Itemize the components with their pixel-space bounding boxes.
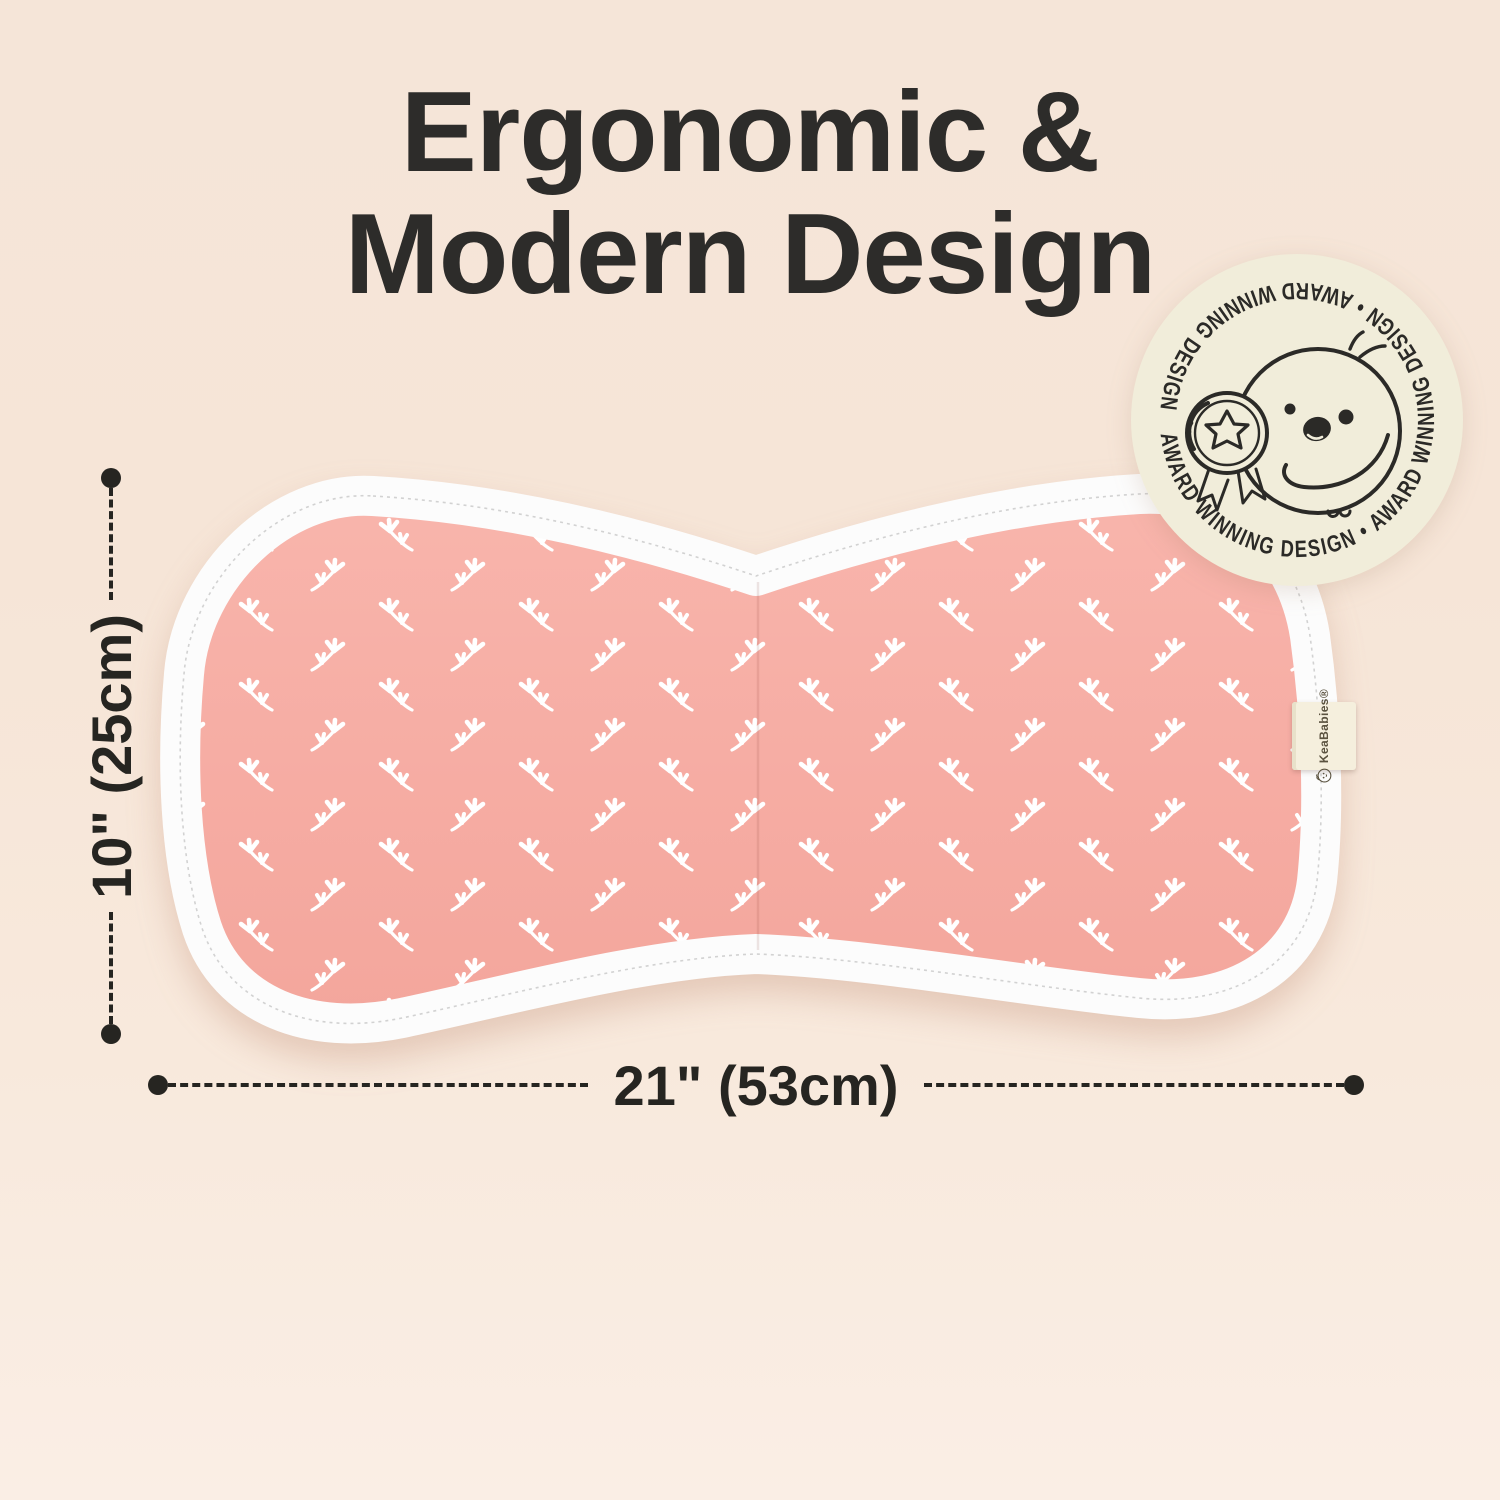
title-line-1: Ergonomic & — [401, 69, 1099, 196]
dimension-dashed-line — [109, 488, 113, 600]
brand-tag-label: KeaBabies® — [1317, 688, 1331, 762]
width-dimension: 21" (53cm) — [148, 1056, 1364, 1114]
dimension-dashed-line — [924, 1083, 1344, 1087]
width-dimension-label: 21" (53cm) — [614, 1053, 899, 1118]
dimension-endpoint-dot — [101, 1024, 121, 1044]
height-dimension: 10" (25cm) — [82, 468, 140, 1044]
brand-tag: KeaBabies® — [1292, 702, 1356, 770]
dimension-endpoint-dot — [148, 1075, 168, 1095]
product-infographic: Ergonomic & Modern Design — [0, 0, 1500, 1500]
chick-logo-icon — [1316, 767, 1333, 784]
dimension-endpoint-dot — [101, 468, 121, 488]
dimension-dashed-line — [168, 1083, 588, 1087]
dimension-dashed-line — [109, 912, 113, 1024]
title-line-2: Modern Design — [345, 191, 1155, 318]
brand-tag-content: KeaBabies® — [1316, 688, 1333, 783]
award-badge: AWARD WINNING DESIGN • AWARD WINNING DES… — [1130, 253, 1464, 587]
dimension-endpoint-dot — [1344, 1075, 1364, 1095]
height-dimension-label: 10" (25cm) — [79, 614, 144, 899]
